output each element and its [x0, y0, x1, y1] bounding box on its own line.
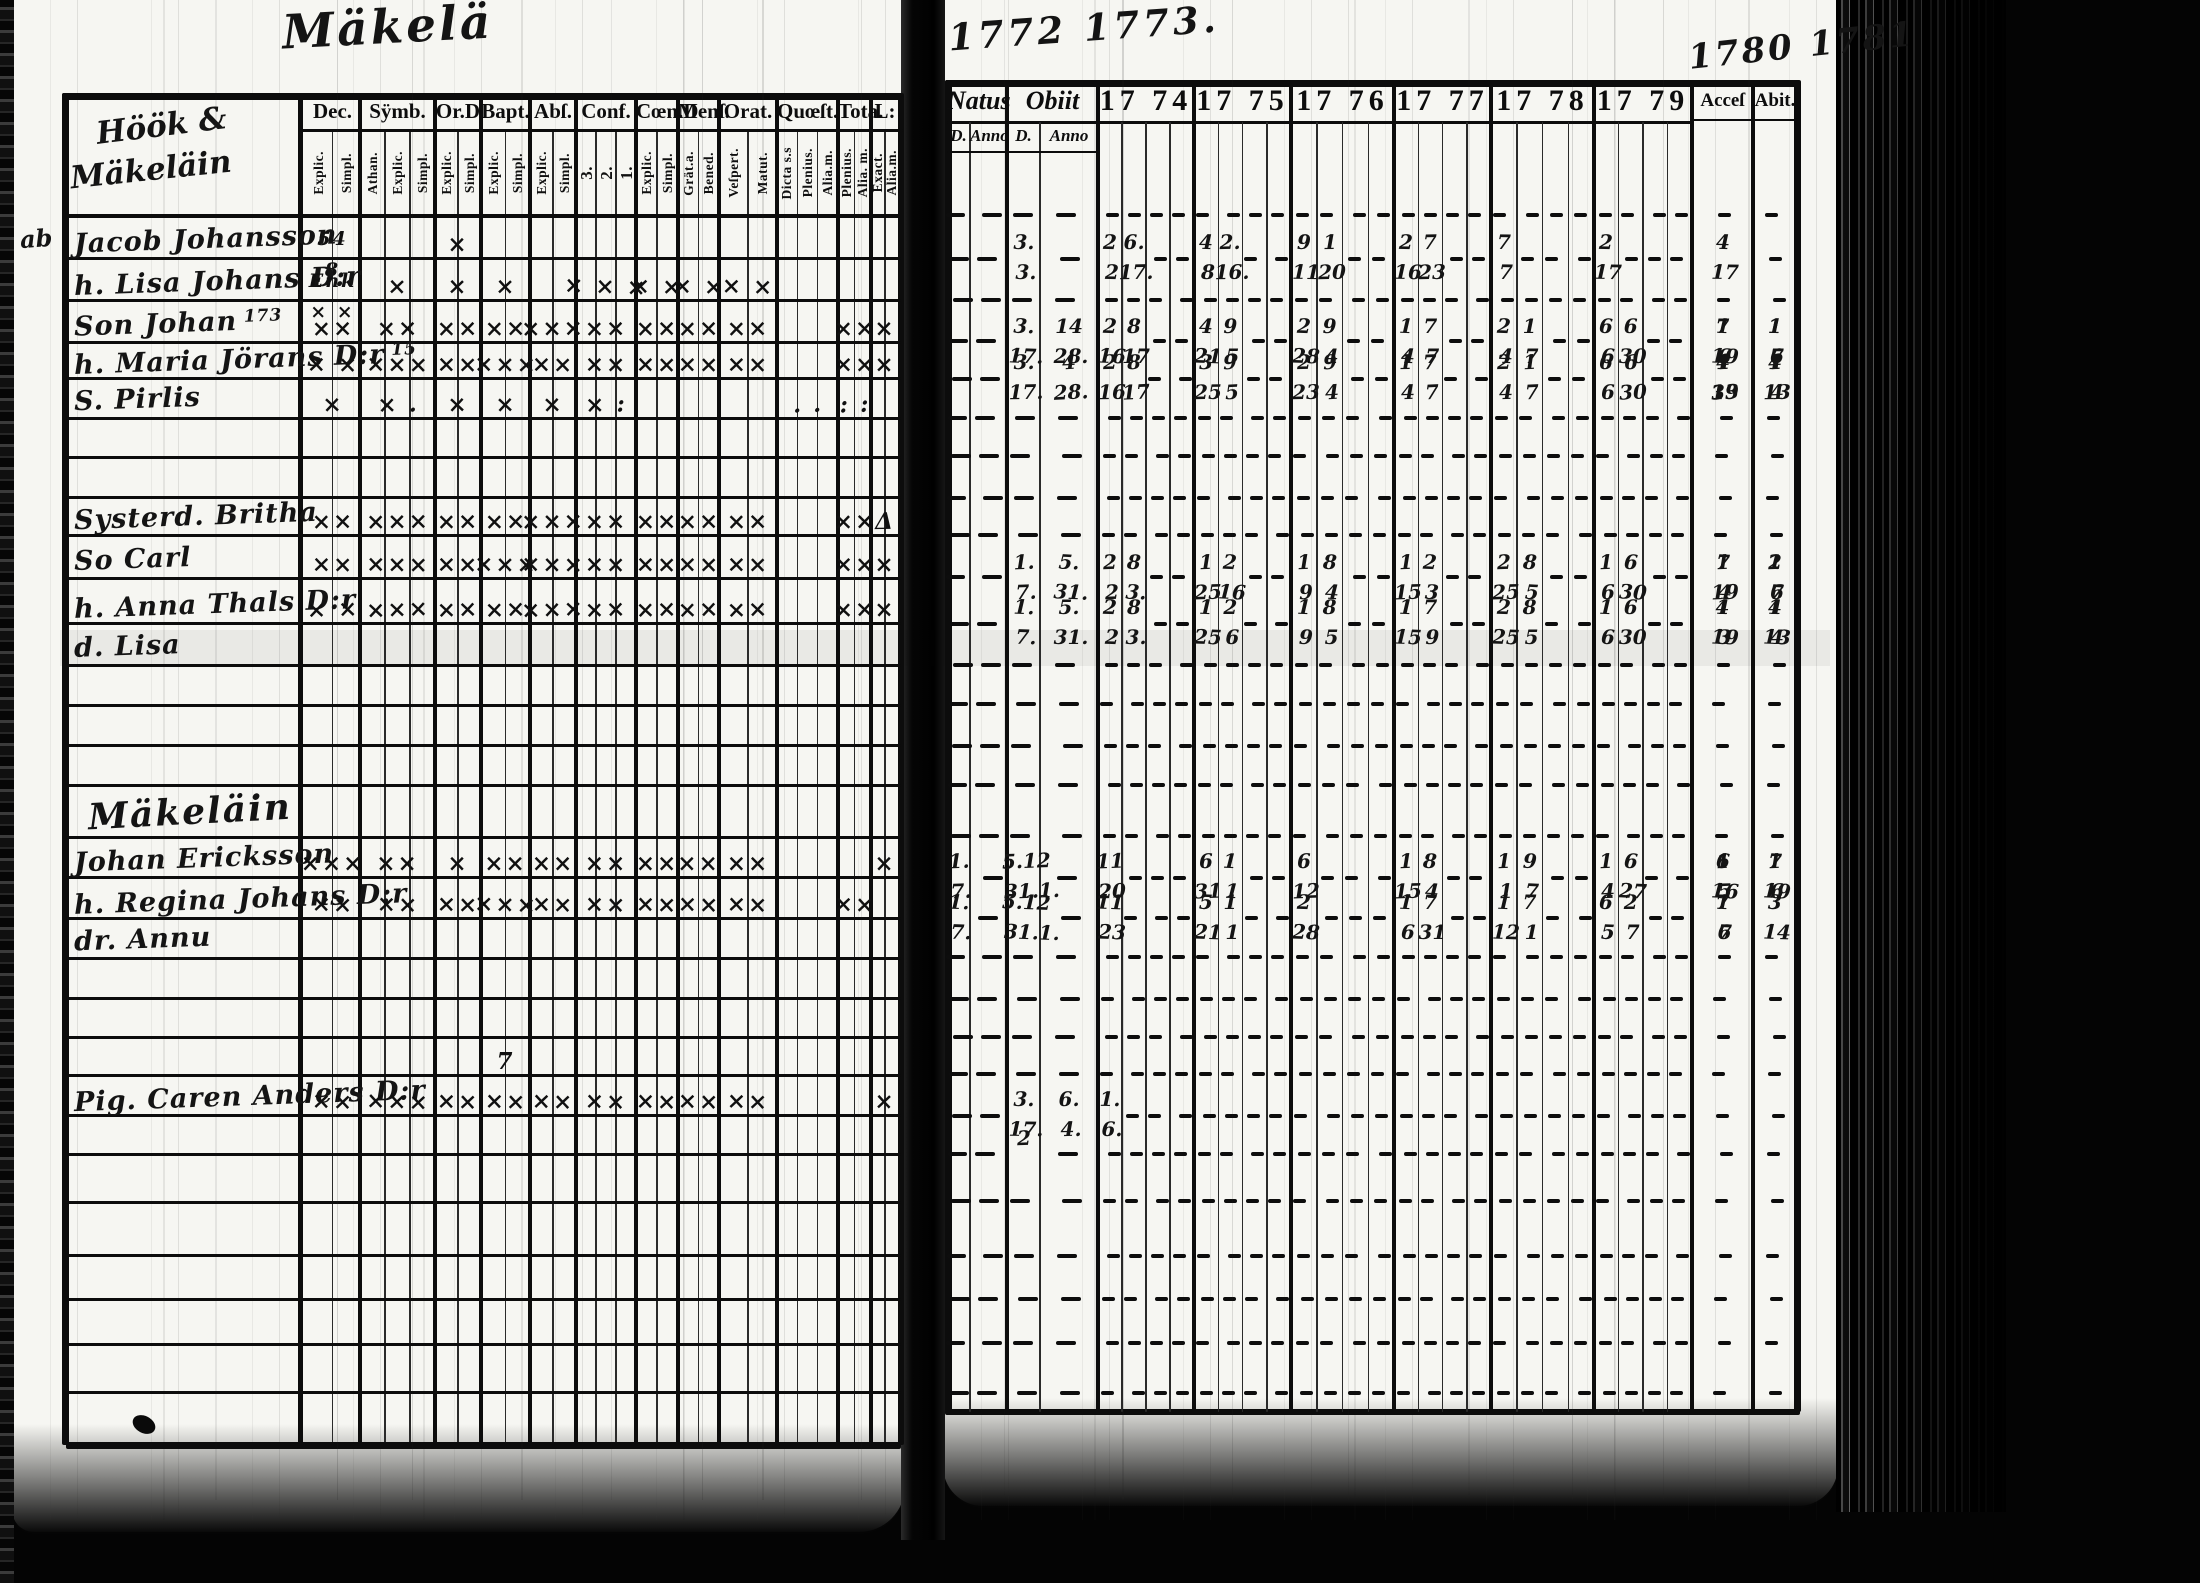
absence-dash: [1057, 876, 1077, 880]
absence-dash: [1196, 213, 1209, 217]
entry-date-top: 6: [1609, 314, 1653, 338]
absence-dash: [1427, 702, 1440, 706]
entry-date-top: 1.: [1088, 1087, 1132, 1112]
absence-dash: [1521, 1391, 1534, 1395]
scan-scratch: [702, 0, 703, 1500]
absence-dash: [1326, 1199, 1339, 1203]
absence-dash: [1156, 834, 1169, 838]
absence-dash: [1124, 533, 1137, 537]
absence-dash: [1495, 416, 1508, 420]
row-line: [66, 1201, 901, 1204]
absence-dash: [1325, 916, 1338, 920]
entry-date-top: 9: [1208, 349, 1253, 375]
absence-dash: [1295, 663, 1308, 667]
absence-dash: [1770, 533, 1783, 537]
absence-dash: [1150, 213, 1163, 217]
cell-mark: ×: [843, 1087, 928, 1117]
entry-date-top: 11: [1088, 848, 1133, 874]
absence-dash: [1294, 744, 1307, 748]
entry-date-top: 6.: [1047, 1087, 1091, 1112]
absence-dash: [1298, 416, 1311, 420]
entry-date-top: 1: [1753, 314, 1797, 338]
absence-dash: [1526, 955, 1539, 959]
absence-dash: [1403, 496, 1416, 500]
absence-dash: [1251, 1152, 1264, 1156]
entry-date-top: 7: [1408, 890, 1452, 914]
entry-date-top: 6: [1609, 595, 1653, 619]
scan-scratch: [611, 0, 612, 1500]
entry-date-top: 8: [1111, 349, 1156, 375]
sub-header-abs-0: Explic.: [530, 133, 553, 213]
absence-dash: [1124, 916, 1137, 920]
absence-dash: [1225, 1114, 1238, 1118]
absence-dash: [1715, 834, 1728, 838]
entry-date-top: 4: [1700, 230, 1744, 255]
absence-dash: [1346, 783, 1359, 787]
entry-date-top: 6: [1281, 848, 1326, 874]
column-header-conf: Conf.: [576, 99, 636, 124]
absence-dash: [1013, 955, 1033, 959]
absence-dash: [978, 916, 998, 920]
column-header-y1779: 17 79: [1594, 84, 1692, 118]
absence-dash: [1525, 663, 1538, 667]
absence-dash: [1376, 298, 1389, 302]
absence-dash: [1651, 1114, 1664, 1118]
scan-scratch: [762, 0, 764, 1500]
absence-dash: [1271, 1341, 1284, 1345]
absence-dash: [1198, 1152, 1211, 1156]
absence-dash: [1402, 955, 1415, 959]
absence-dash: [1224, 834, 1237, 838]
sub-header-text: Simpl.: [463, 153, 477, 193]
absence-dash: [1470, 783, 1483, 787]
absence-dash: [949, 257, 969, 261]
absence-dash: [1063, 744, 1083, 748]
absence-dash: [1252, 702, 1265, 706]
absence-dash: [1222, 997, 1235, 1001]
absence-dash: [1574, 575, 1587, 579]
sub-column-line: [1266, 122, 1268, 1412]
absence-dash: [1469, 876, 1482, 880]
absence-dash: [1348, 1391, 1361, 1395]
cell-mark: ×: [843, 350, 927, 378]
absence-dash: [1626, 1297, 1639, 1301]
absence-dash: [976, 1072, 996, 1076]
absence-dash: [982, 955, 1002, 959]
right-table-border-bottom: [945, 1409, 1800, 1415]
absence-dash: [1177, 1297, 1190, 1301]
absence-dash: [1198, 783, 1211, 787]
absence-dash: [1010, 834, 1030, 838]
absence-dash: [1495, 783, 1508, 787]
absence-dash: [1553, 339, 1566, 343]
absence-dash: [1248, 1035, 1261, 1039]
absence-dash: [1220, 416, 1233, 420]
entry-date-top: 8: [1507, 549, 1552, 575]
absence-dash: [1225, 744, 1238, 748]
absence-dash: [1428, 997, 1441, 1001]
absence-dash: [1372, 1391, 1385, 1395]
absence-dash: [1600, 496, 1613, 500]
absence-dash: [1102, 533, 1115, 537]
absence-dash: [1106, 213, 1119, 217]
absence-dash: [1346, 1152, 1359, 1156]
absence-dash: [1245, 533, 1258, 537]
absence-dash: [1400, 1114, 1413, 1118]
absence-dash: [1323, 702, 1336, 706]
column-header-y1777: 17 77: [1394, 84, 1491, 118]
absence-dash: [1475, 744, 1488, 748]
absence-dash: [1626, 533, 1639, 537]
absence-dash: [1622, 1254, 1635, 1258]
absence-dash: [1624, 702, 1637, 706]
row-line: [66, 496, 901, 499]
row-line: [66, 456, 901, 459]
absence-dash: [1675, 213, 1688, 217]
row-line: [66, 664, 901, 667]
absence-dash: [1448, 416, 1461, 420]
absence-dash: [1270, 663, 1283, 667]
absence-dash: [951, 834, 971, 838]
absence-dash: [1648, 1391, 1661, 1395]
entry-date-top: 14: [1047, 314, 1091, 338]
absence-dash: [1424, 1341, 1437, 1345]
absence-dash: [1352, 663, 1365, 667]
absence-dash: [1226, 298, 1239, 302]
entry-date-top: 1: [1507, 349, 1552, 375]
absence-dash: [1550, 575, 1563, 579]
absence-dash: [975, 783, 995, 787]
absence-dash: [1717, 1035, 1730, 1039]
absence-dash: [1677, 1152, 1690, 1156]
absence-dash: [1220, 783, 1233, 787]
cell-mark: ××: [812, 890, 897, 920]
absence-dash: [1319, 298, 1332, 302]
absence-dash: [1649, 1297, 1662, 1301]
absence-dash: [1062, 834, 1082, 838]
absence-dash: [1249, 1341, 1262, 1345]
entry-date-bottom: 7: [1611, 920, 1655, 944]
absence-dash: [1769, 997, 1782, 1001]
absence-dash: [1500, 744, 1513, 748]
absence-dash: [1526, 1341, 1539, 1345]
absence-dash: [1154, 1391, 1167, 1395]
absence-dash: [1325, 533, 1338, 537]
absence-dash: [1573, 663, 1586, 667]
absence-dash: [1672, 454, 1685, 458]
absence-dash: [1576, 416, 1589, 420]
absence-dash: [1476, 1035, 1489, 1039]
entry-date-bottom: 33: [1702, 379, 1747, 405]
absence-dash: [1324, 997, 1337, 1001]
cell-mark: : :: [812, 390, 897, 420]
entry-date-top: 7: [1701, 890, 1745, 914]
absence-dash: [1178, 834, 1191, 838]
absence-dash: [1424, 955, 1437, 959]
absence-dash: [1496, 1072, 1509, 1076]
absence-dash: [1425, 1254, 1438, 1258]
absence-dash: [1196, 1341, 1209, 1345]
column-header-abs: Abſ.: [530, 99, 576, 124]
sub-header-text: Bened.: [702, 152, 716, 194]
absence-dash: [1526, 213, 1539, 217]
absence-dash: [983, 876, 1003, 880]
absence-dash: [1327, 744, 1340, 748]
register-tables: Dec.Explic.Simpl.Sÿmb.Athan.Explic.Simpl…: [0, 0, 2200, 1583]
absence-dash: [1646, 783, 1659, 787]
entry-date-bottom: 3: [1703, 625, 1747, 649]
column-header-natus: Natus: [947, 86, 1007, 116]
sub-column-line: [1466, 122, 1468, 1412]
sub-column-line: [1667, 122, 1669, 1412]
absence-dash: [1299, 1072, 1312, 1076]
absence-dash: [1712, 1072, 1725, 1076]
absence-dash: [1061, 1297, 1081, 1301]
absence-dash: [1252, 339, 1265, 343]
absence-dash: [1173, 876, 1186, 880]
absence-dash: [1224, 1199, 1237, 1203]
absence-dash: [1596, 1199, 1609, 1203]
absence-dash: [1599, 213, 1612, 217]
absence-dash: [1671, 916, 1684, 920]
absence-dash: [1623, 783, 1636, 787]
entry-date-top: 3: [1753, 889, 1798, 915]
absence-dash: [1494, 1254, 1507, 1258]
absence-dash: [1426, 1152, 1439, 1156]
absence-dash: [1126, 744, 1139, 748]
absence-dash: [1718, 1341, 1731, 1345]
entry-date-bottom: 23: [1090, 919, 1135, 945]
absence-dash: [1108, 1152, 1121, 1156]
absence-dash: [1546, 916, 1559, 920]
absence-dash: [1713, 1391, 1726, 1395]
absence-dash: [1675, 955, 1688, 959]
absence-dash: [1199, 1072, 1212, 1076]
absence-dash: [1551, 1254, 1564, 1258]
absence-dash: [1468, 213, 1481, 217]
absence-dash: [1130, 1152, 1143, 1156]
absence-dash: [1149, 298, 1162, 302]
absence-dash: [1125, 1199, 1138, 1203]
absence-dash: [952, 1114, 972, 1118]
absence-dash: [1651, 744, 1664, 748]
absence-dash: [1773, 298, 1786, 302]
absence-dash: [1011, 744, 1031, 748]
absence-dash: [1327, 1114, 1340, 1118]
row-name: dr. Annu: [74, 922, 212, 958]
absence-dash: [1494, 496, 1507, 500]
scan-scratch: [1232, 0, 1233, 1500]
absence-dash: [1249, 575, 1262, 579]
absence-dash: [1269, 1114, 1282, 1118]
cell-mark: ×: [843, 850, 927, 877]
absence-dash: [1222, 1391, 1235, 1395]
absence-dash: [1293, 1199, 1306, 1203]
absence-dash: [1602, 702, 1615, 706]
column-header-symb: Sÿmb.: [360, 99, 435, 124]
entry-date-top: 7: [1508, 890, 1552, 914]
absence-dash: [1773, 1035, 1786, 1039]
absence-dash: [1015, 416, 1035, 420]
entry-date-top: 8: [1408, 848, 1453, 874]
absence-dash: [1471, 1072, 1484, 1076]
absence-dash: [1628, 744, 1641, 748]
absence-dash: [1446, 955, 1459, 959]
row-name: Son Johan 173: [74, 304, 283, 342]
absence-dash: [1013, 1341, 1033, 1345]
absence-dash: [1244, 1391, 1257, 1395]
absence-dash: [1271, 955, 1284, 959]
absence-dash: [1404, 783, 1417, 787]
absence-dash: [1579, 1297, 1592, 1301]
absence-dash: [1226, 1035, 1239, 1039]
cell-mark: 7: [464, 1048, 548, 1075]
absence-dash: [1574, 955, 1587, 959]
absence-dash: [1652, 298, 1665, 302]
absence-dash: [1125, 454, 1138, 458]
absence-dash: [1422, 1114, 1435, 1118]
absence-dash: [1320, 955, 1333, 959]
absence-dash: [1378, 1254, 1391, 1258]
absence-dash: [1373, 916, 1386, 920]
absence-dash: [1202, 834, 1215, 838]
row-line: [66, 744, 901, 747]
absence-dash: [1647, 339, 1660, 343]
absence-dash: [951, 454, 971, 458]
entry-date-bottom: 31: [1410, 920, 1454, 944]
entry-date-top: 7: [1408, 314, 1452, 338]
absence-dash: [1221, 702, 1234, 706]
absence-dash: [1579, 533, 1592, 537]
absence-dash: [1546, 533, 1559, 537]
entry-date-top: 2: [1001, 1125, 1046, 1151]
entry-date-top: 2: [1208, 549, 1253, 575]
absence-dash: [1627, 834, 1640, 838]
absence-dash: [1156, 1199, 1169, 1203]
absence-dash: [1373, 533, 1386, 537]
sub-header-underline: [1007, 151, 1098, 153]
absence-dash: [1427, 1072, 1440, 1076]
absence-dash: [1372, 622, 1385, 626]
absence-dash: [1501, 298, 1514, 302]
absence-dash: [1578, 1391, 1591, 1395]
absence-dash: [1326, 454, 1339, 458]
absence-dash: [1771, 454, 1784, 458]
absence-dash: [1597, 744, 1610, 748]
absence-dash: [1521, 997, 1534, 1001]
absence-dash: [1301, 533, 1314, 537]
entry-date-top: 4: [1701, 595, 1745, 619]
absence-dash: [1250, 496, 1263, 500]
absence-dash: [1578, 997, 1591, 1001]
absence-dash: [1520, 1072, 1533, 1076]
entry-date-top: 1.: [936, 889, 981, 915]
absence-dash: [1446, 575, 1459, 579]
column-header-tota: Tota.: [838, 99, 871, 124]
sub-header-text: 3.: [578, 166, 595, 180]
absence-dash: [1493, 1341, 1506, 1345]
absence-dash: [1153, 702, 1166, 706]
absence-dash: [1221, 1072, 1234, 1076]
absence-dash: [1376, 663, 1389, 667]
entry-date-bottom: 7: [1509, 379, 1554, 405]
entry-date-top: 7: [1752, 848, 1797, 874]
entry-date-bottom: 30: [1610, 379, 1655, 405]
absence-dash: [1059, 702, 1079, 706]
absence-dash: [1647, 1072, 1660, 1076]
header-underline: [1753, 119, 1797, 122]
absence-dash: [1350, 1199, 1363, 1203]
absence-dash: [1450, 997, 1463, 1001]
absence-dash: [1012, 1035, 1032, 1039]
absence-dash: [1293, 454, 1306, 458]
absence-dash: [1174, 783, 1187, 787]
absence-dash: [1014, 496, 1034, 500]
absence-dash: [1476, 663, 1489, 667]
absence-dash: [1350, 454, 1363, 458]
absence-dash: [1523, 1199, 1536, 1203]
absence-dash: [1552, 1152, 1565, 1156]
absence-dash: [1103, 454, 1116, 458]
absence-dash: [1598, 298, 1611, 302]
entry-date-top: 1.: [1001, 594, 1046, 620]
absence-dash: [1574, 213, 1587, 217]
absence-dash: [1621, 1341, 1634, 1345]
absence-dash: [1575, 496, 1588, 500]
absence-dash: [1545, 997, 1558, 1001]
absence-dash: [1176, 1391, 1189, 1395]
absence-dash: [1324, 1391, 1337, 1395]
absence-dash: [1474, 454, 1487, 458]
absence-dash: [1130, 416, 1143, 420]
absence-dash: [1273, 1152, 1286, 1156]
absence-dash: [1175, 339, 1188, 343]
absence-dash: [948, 702, 968, 706]
absence-dash: [1396, 1072, 1409, 1076]
column-header-coenD: Cœn.D: [636, 99, 678, 124]
absence-dash: [1625, 997, 1638, 1001]
absence-dash: [1107, 1254, 1120, 1258]
absence-dash: [1522, 533, 1535, 537]
absence-dash: [953, 298, 973, 302]
absence-dash: [1251, 783, 1264, 787]
right-table-border-left: [945, 80, 952, 1412]
absence-dash: [1420, 533, 1433, 537]
absence-dash: [1623, 416, 1636, 420]
absence-dash: [1399, 1199, 1412, 1203]
entry-date-top: 9: [1208, 314, 1252, 338]
absence-dash: [1175, 1072, 1188, 1076]
absence-dash: [1428, 1391, 1441, 1395]
absence-dash: [1149, 663, 1162, 667]
absence-dash: [1601, 783, 1614, 787]
absence-dash: [1016, 1072, 1036, 1076]
absence-dash: [1604, 533, 1617, 537]
absence-dash: [947, 1152, 967, 1156]
absence-dash: [976, 702, 996, 706]
row-line: [66, 1036, 901, 1039]
absence-dash: [1452, 1199, 1465, 1203]
absence-dash: [1525, 298, 1538, 302]
absence-dash: [1014, 1254, 1034, 1258]
absence-dash: [1649, 916, 1662, 920]
entry-date-top: 4: [1700, 349, 1745, 375]
right-table-border-right: [1794, 80, 1801, 1412]
sub-header-text: Veſpert.: [727, 148, 741, 198]
absence-dash: [1372, 257, 1385, 261]
absence-dash: [1674, 298, 1687, 302]
absence-dash: [1553, 1072, 1566, 1076]
